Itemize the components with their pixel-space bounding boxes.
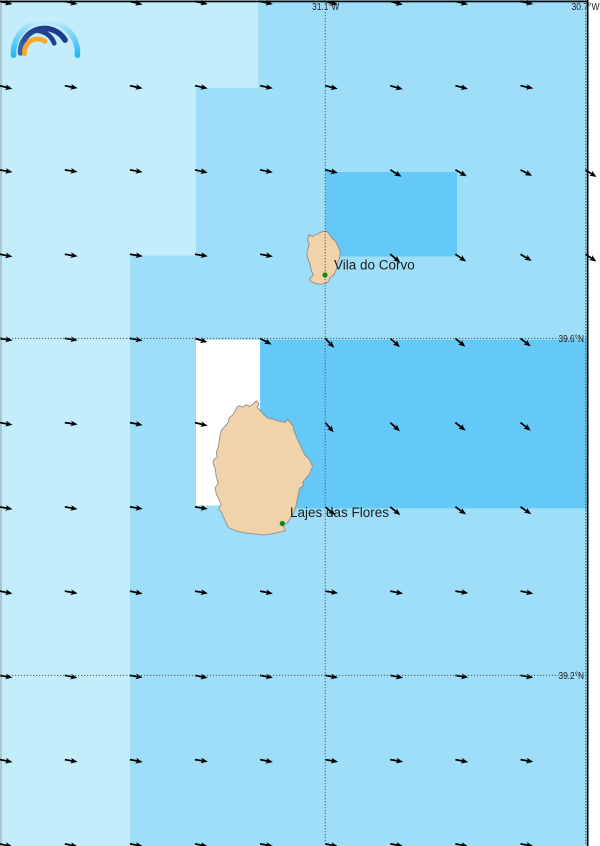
svg-text:39.2°N: 39.2°N	[559, 671, 585, 682]
svg-text:31.1°W: 31.1°W	[312, 2, 339, 13]
svg-text:39.6°N: 39.6°N	[559, 334, 585, 345]
svg-text:Vila do Corvo: Vila do Corvo	[334, 257, 415, 272]
svg-text:30.7°W: 30.7°W	[572, 2, 600, 13]
svg-text:Lajes das Flores: Lajes das Flores	[290, 505, 389, 520]
